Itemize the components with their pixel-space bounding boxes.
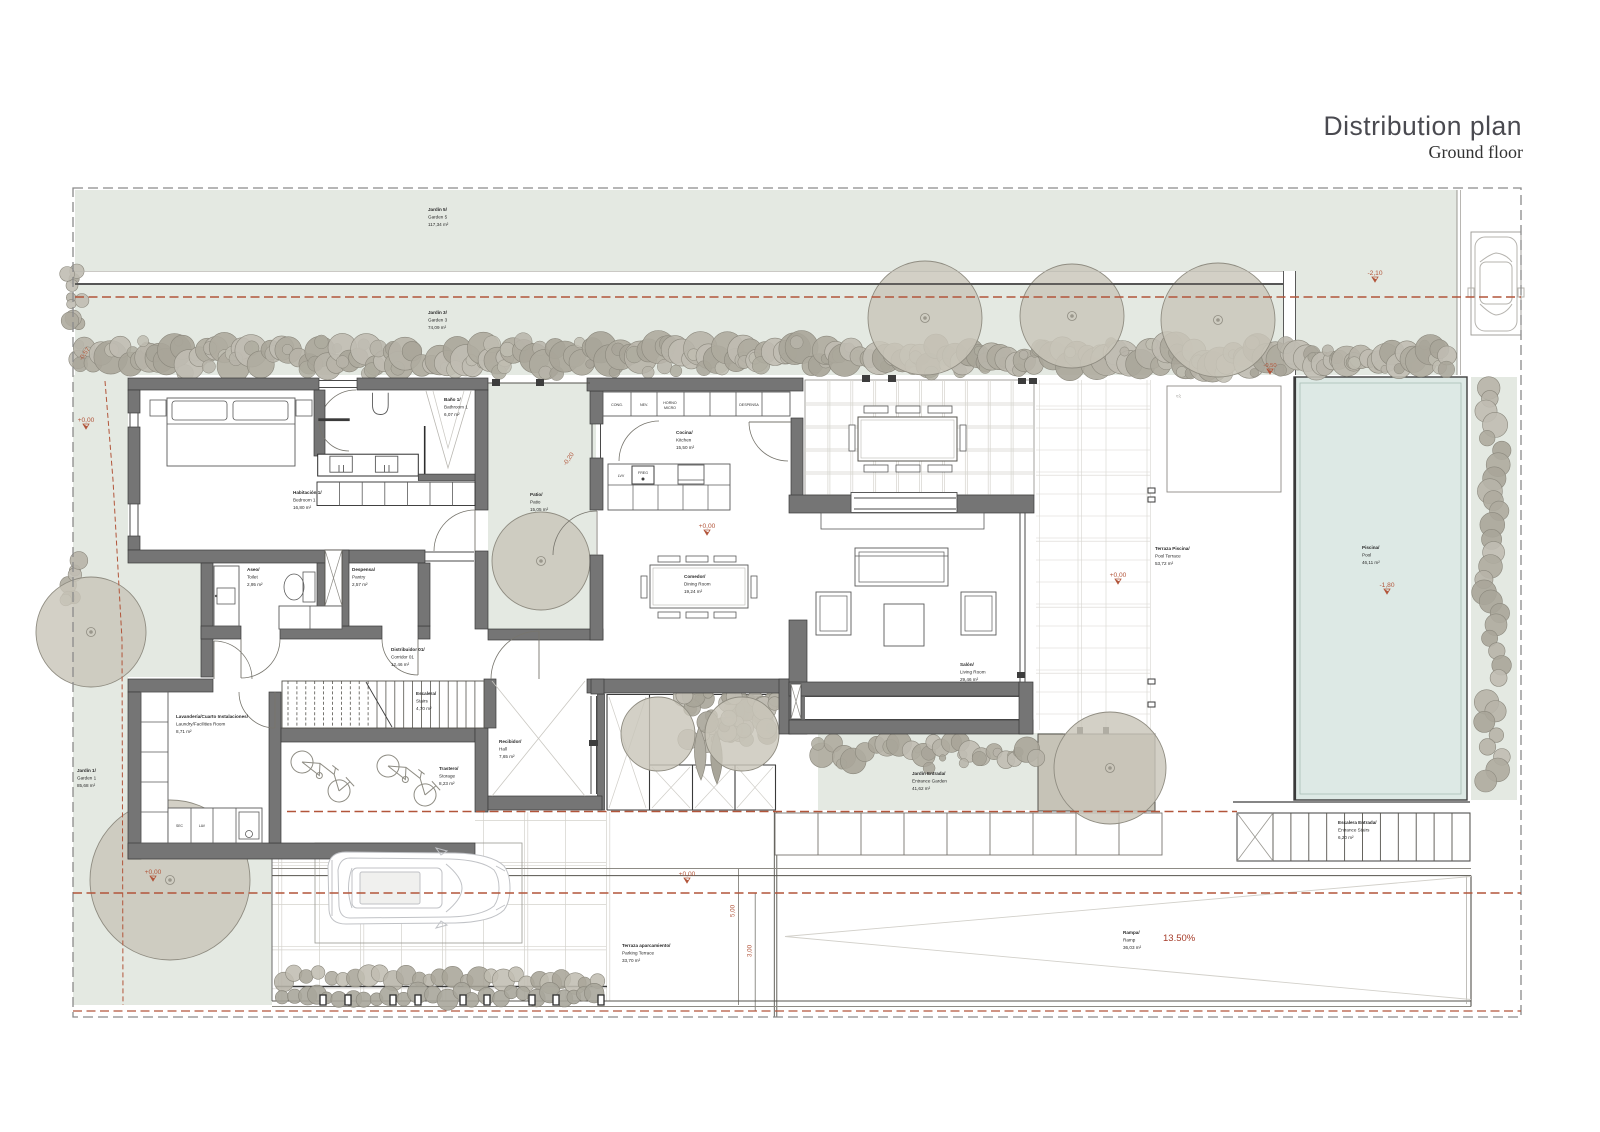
svg-text:FREG: FREG	[638, 471, 648, 475]
svg-text:Jardín 1/Garden 185,68 m²: Jardín 1/Garden 185,68 m²	[77, 768, 97, 788]
svg-text:+0,00: +0,00	[1110, 572, 1127, 579]
svg-text:Jardín 3/Garden 374,09 m²: Jardín 3/Garden 374,09 m²	[428, 310, 448, 330]
svg-text:+0,00: +0,00	[145, 869, 162, 876]
svg-text:LAV: LAV	[199, 824, 206, 828]
svg-text:SEC: SEC	[176, 824, 184, 828]
svg-text:DESPENSA: DESPENSA	[739, 403, 759, 407]
svg-text:3,00: 3,00	[747, 944, 754, 957]
svg-text:+0,00: +0,00	[679, 871, 696, 878]
svg-text:CONG.: CONG.	[611, 403, 623, 407]
svg-text:Jardín 5/Garden 5117,34 m²: Jardín 5/Garden 5117,34 m²	[428, 207, 449, 227]
svg-text:13.50%: 13.50%	[1163, 933, 1196, 944]
svg-text:NEV.: NEV.	[640, 403, 648, 407]
svg-text:LVV: LVV	[618, 474, 625, 478]
svg-text:-2,10: -2,10	[1367, 270, 1382, 277]
svg-text:MICRO: MICRO	[664, 406, 676, 410]
svg-text:-1,80: -1,80	[1379, 582, 1394, 589]
svg-text:≈⌇: ≈⌇	[1176, 394, 1181, 400]
svg-text:+0,00: +0,00	[78, 417, 95, 424]
svg-text:5,00: 5,00	[730, 904, 737, 917]
svg-text:+0,00: +0,00	[699, 523, 716, 530]
svg-text:Ground floor: Ground floor	[1429, 142, 1523, 162]
svg-text:Distribution plan: Distribution plan	[1323, 111, 1522, 141]
svg-text:HORNO: HORNO	[663, 401, 677, 405]
svg-text:-0,50: -0,50	[1263, 363, 1276, 369]
